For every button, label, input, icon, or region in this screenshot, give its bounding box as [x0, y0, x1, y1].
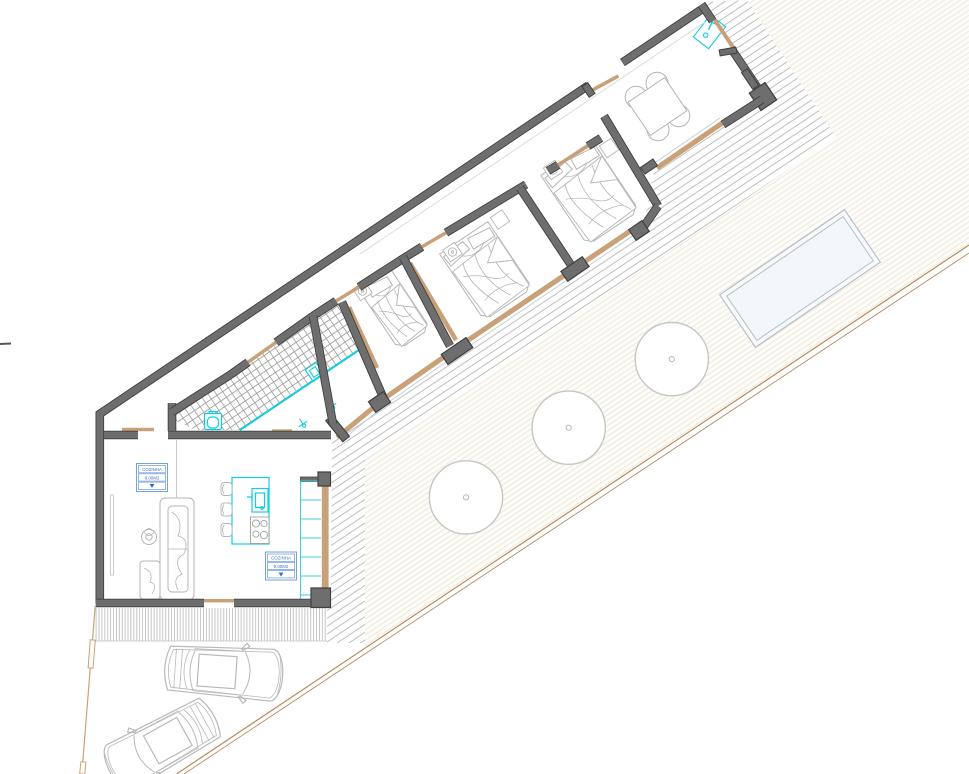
svg-text:COZINHA: COZINHA — [271, 556, 291, 561]
svg-text:9.00M2: 9.00M2 — [274, 564, 289, 569]
svg-text:COZINHA: COZINHA — [142, 467, 162, 472]
svg-text:8.00M2: 8.00M2 — [145, 475, 160, 480]
